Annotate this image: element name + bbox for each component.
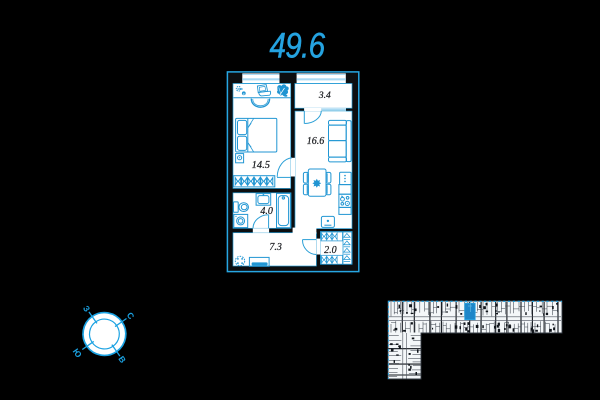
svg-text:4.0: 4.0 — [260, 206, 273, 217]
svg-text:2.0: 2.0 — [324, 245, 337, 256]
svg-text:14.5: 14.5 — [252, 160, 270, 171]
svg-text:7.3: 7.3 — [269, 242, 282, 253]
svg-text:3.4: 3.4 — [318, 91, 331, 101]
svg-text:49.6: 49.6 — [270, 26, 326, 65]
svg-text:16.6: 16.6 — [307, 136, 325, 147]
